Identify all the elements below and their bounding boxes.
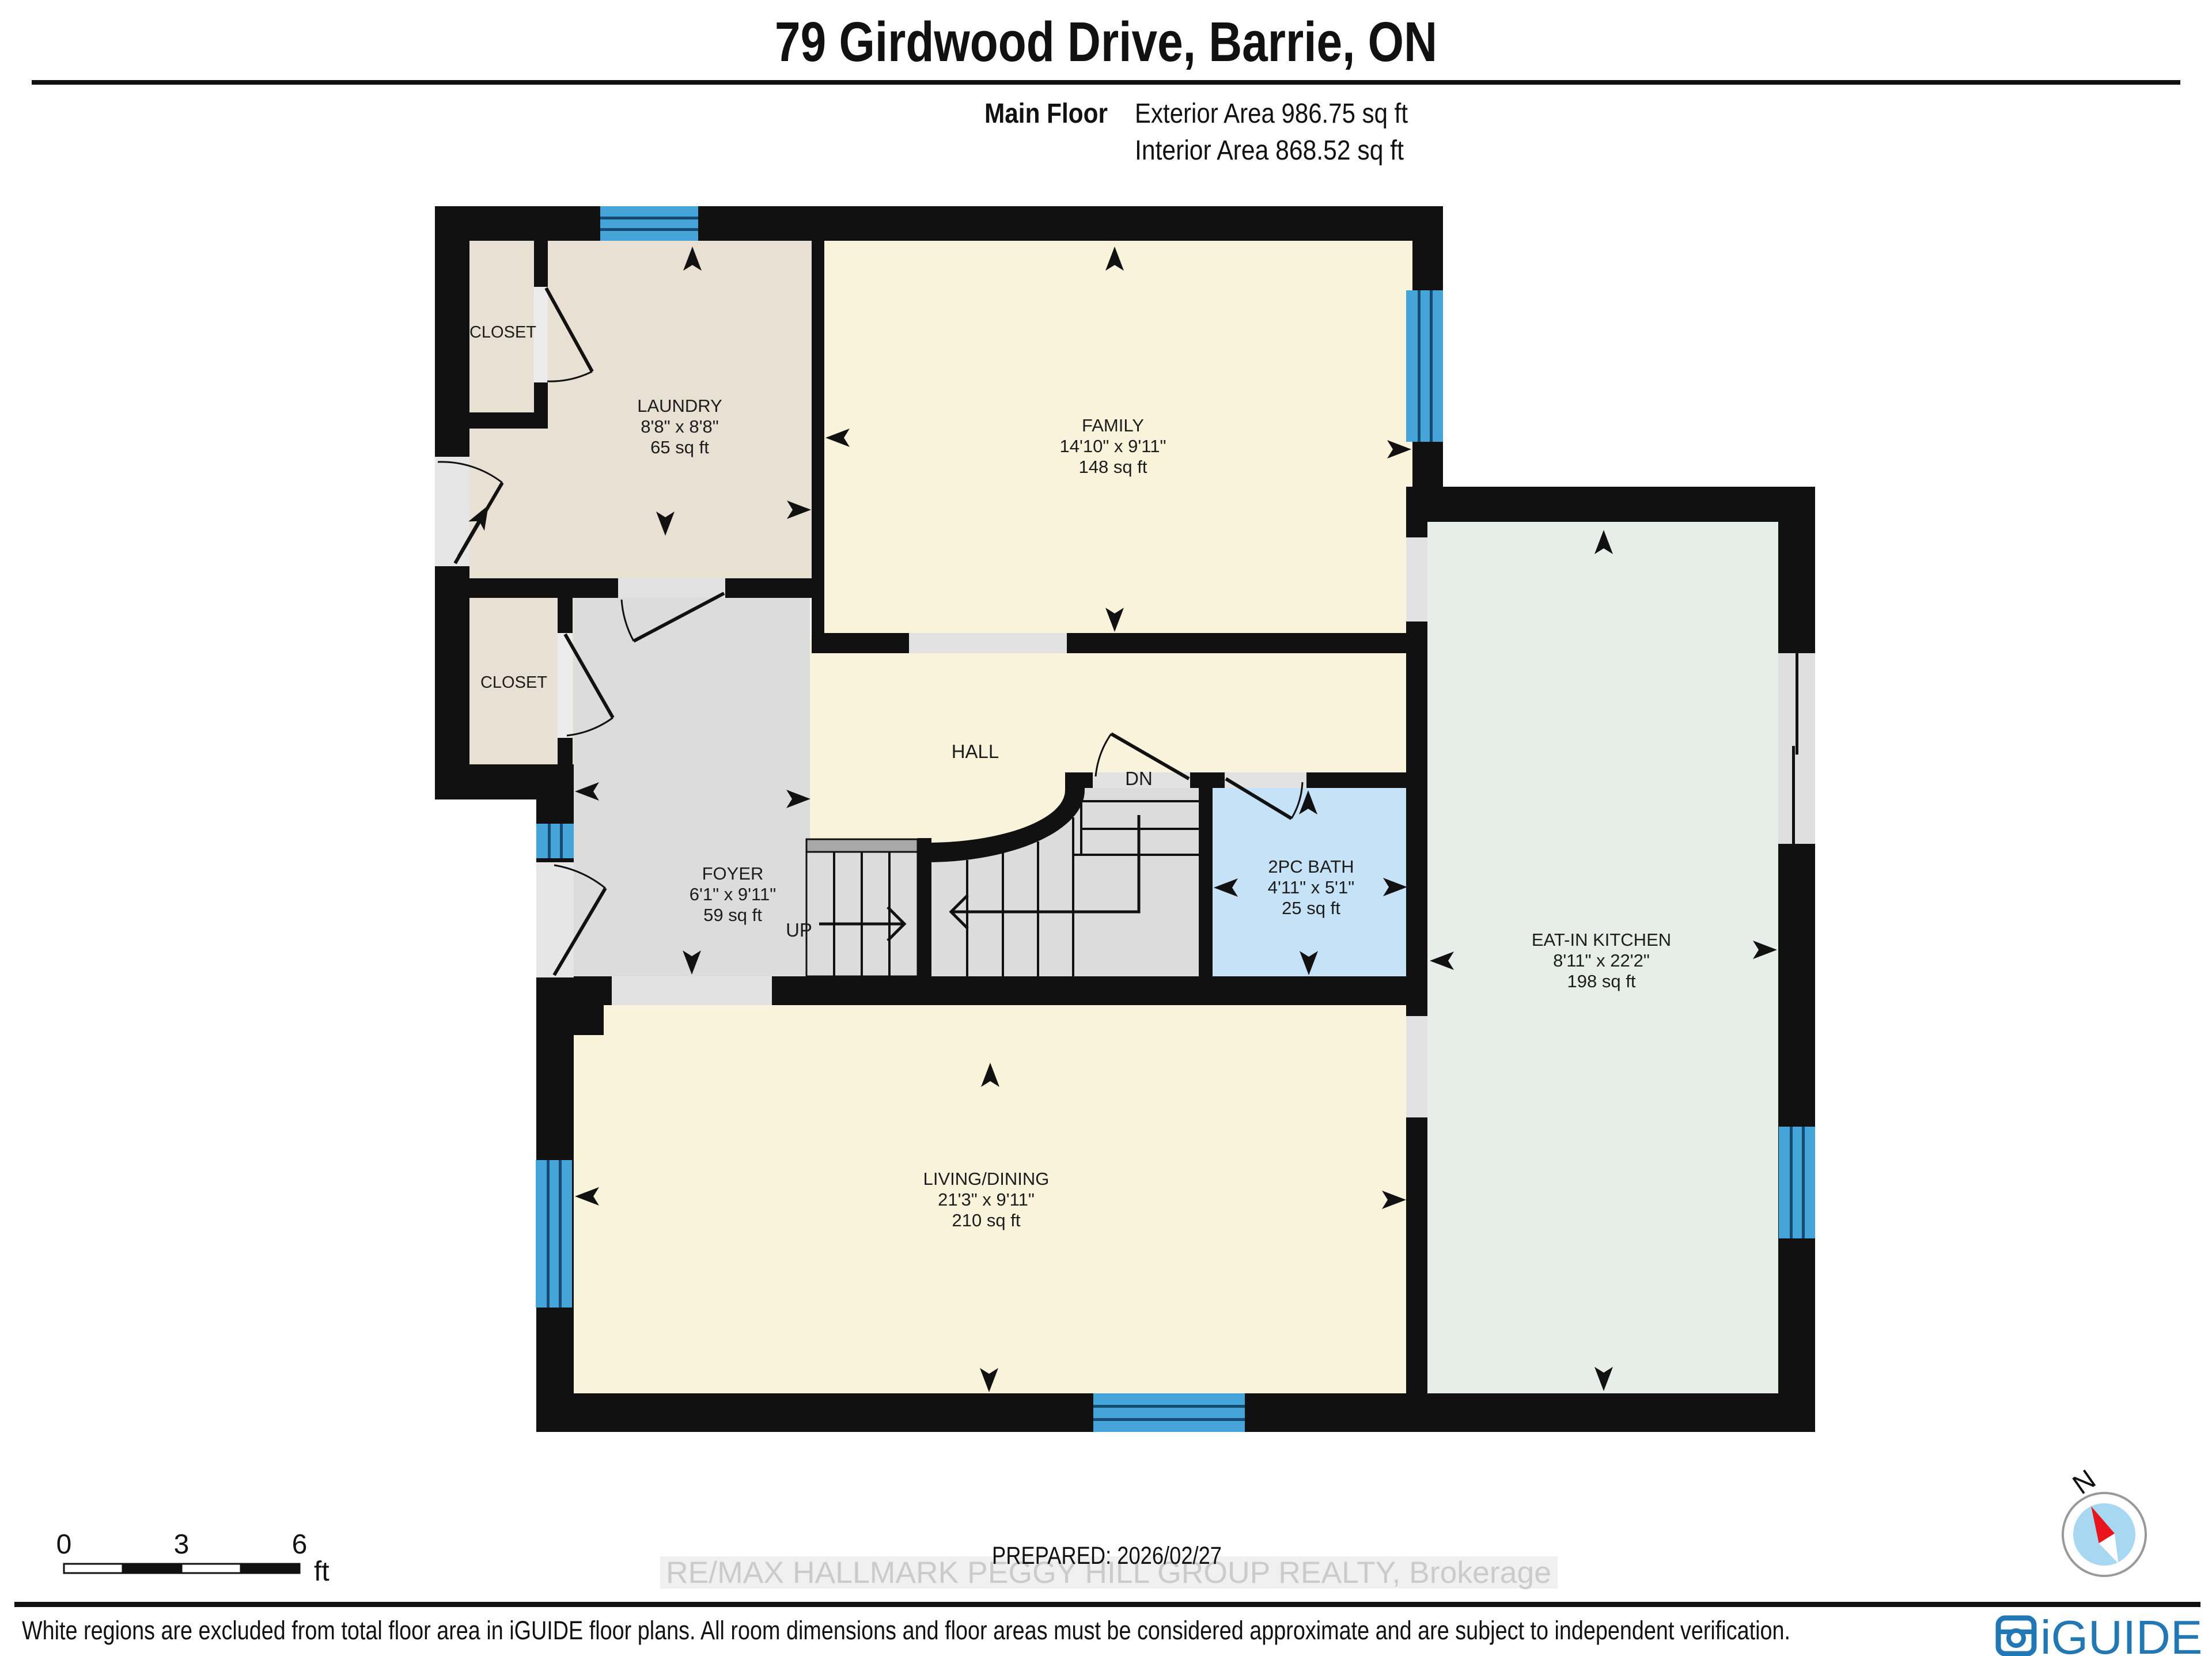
svg-text:White regions are excluded fro: White regions are excluded from total fl…	[22, 1616, 1790, 1645]
svg-text:21'3" x 9'11": 21'3" x 9'11"	[938, 1189, 1035, 1210]
svg-text:59 sq ft: 59 sq ft	[703, 905, 762, 925]
svg-text:Exterior Area 986.75 sq ft: Exterior Area 986.75 sq ft	[1135, 98, 1408, 129]
svg-text:8'8" x 8'8": 8'8" x 8'8"	[641, 416, 719, 437]
svg-text:4'11" x 5'1": 4'11" x 5'1"	[1268, 877, 1354, 897]
svg-text:Main Floor: Main Floor	[984, 98, 1108, 129]
svg-text:HALL: HALL	[952, 741, 999, 762]
svg-text:ft: ft	[314, 1556, 329, 1587]
svg-text:FOYER: FOYER	[702, 863, 764, 884]
svg-text:79 Girdwood Drive, Barrie, ON: 79 Girdwood Drive, Barrie, ON	[775, 10, 1437, 73]
svg-text:2PC BATH: 2PC BATH	[1268, 857, 1354, 877]
svg-text:3: 3	[174, 1529, 190, 1560]
svg-text:UP: UP	[786, 919, 812, 941]
svg-text:8'11" x 22'2": 8'11" x 22'2"	[1553, 950, 1650, 971]
svg-text:210 sq ft: 210 sq ft	[952, 1210, 1021, 1230]
svg-text:iGUIDE: iGUIDE	[2040, 1610, 2202, 1656]
svg-text:LAUNDRY: LAUNDRY	[637, 396, 722, 416]
svg-text:6'1" x 9'11": 6'1" x 9'11"	[690, 884, 776, 904]
svg-text:DN: DN	[1125, 768, 1153, 789]
svg-text:25 sq ft: 25 sq ft	[1282, 898, 1340, 918]
svg-text:65 sq ft: 65 sq ft	[650, 437, 709, 457]
svg-text:PREPARED: 2026/02/27: PREPARED: 2026/02/27	[992, 1542, 1222, 1570]
svg-text:LIVING/DINING: LIVING/DINING	[923, 1169, 1050, 1189]
svg-text:CLOSET: CLOSET	[469, 323, 536, 342]
svg-text:FAMILY: FAMILY	[1082, 415, 1144, 435]
svg-text:CLOSET: CLOSET	[480, 673, 547, 692]
svg-text:6: 6	[292, 1529, 308, 1560]
svg-text:148 sq ft: 148 sq ft	[1079, 457, 1147, 477]
svg-text:EAT-IN KITCHEN: EAT-IN KITCHEN	[1532, 930, 1671, 950]
svg-text:Interior Area 868.52 sq ft: Interior Area 868.52 sq ft	[1135, 135, 1404, 166]
svg-text:14'10" x 9'11": 14'10" x 9'11"	[1060, 436, 1166, 456]
svg-text:198 sq ft: 198 sq ft	[1567, 971, 1636, 991]
svg-text:0: 0	[56, 1529, 72, 1560]
